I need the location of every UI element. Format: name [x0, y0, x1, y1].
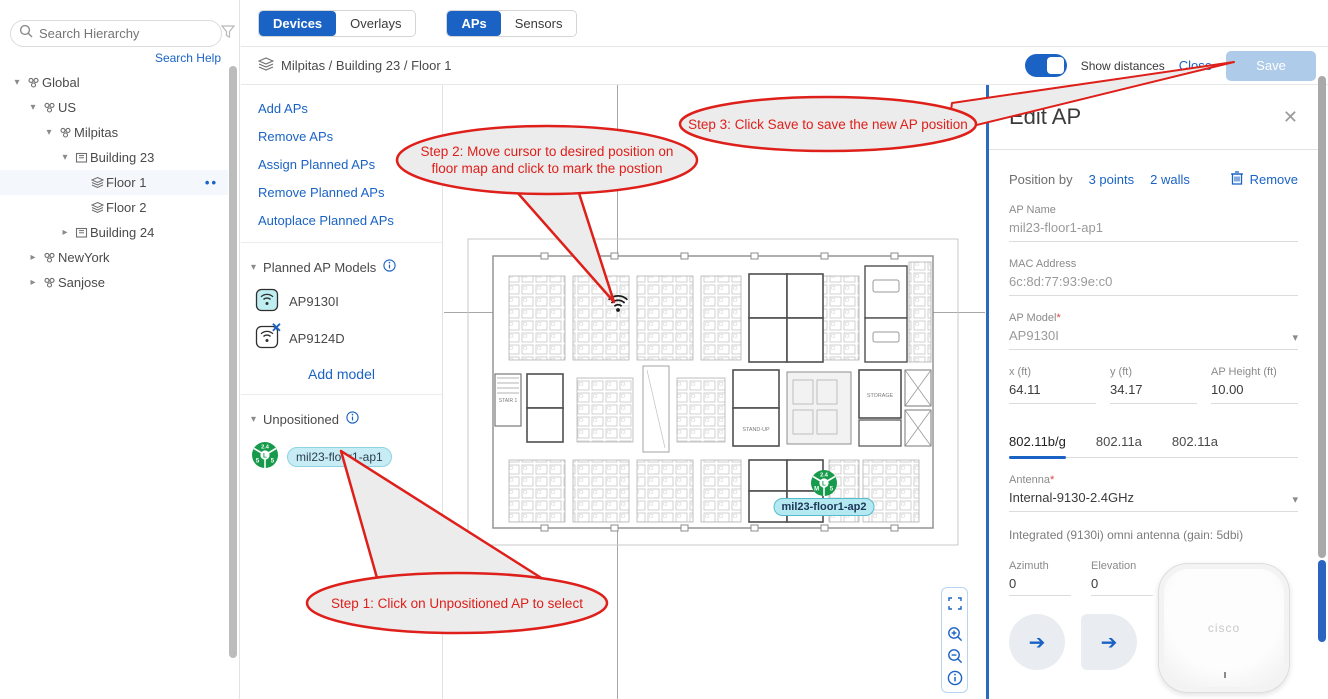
site-icon — [40, 251, 58, 264]
ap-name-value: mil23-floor1-ap1 — [1009, 220, 1298, 235]
tree-node-floor1[interactable]: Floor 1 •• — [0, 170, 228, 195]
edit-ap-panel: Edit AP ✕ Position by 3 points 2 walls R… — [986, 85, 1318, 699]
assign-planned-aps-link[interactable]: Assign Planned APs — [241, 150, 442, 178]
breadcrumb: Milpitas / Building 23 / Floor 1 — [258, 57, 452, 74]
tree-node-building23[interactable]: ▾ Building 23 — [0, 145, 228, 170]
hierarchy-sidebar: Search Help ▾ Global ▾ US ▾ Milpitas ▾ B… — [0, 0, 240, 699]
unpositioned-header[interactable]: ▾ Unpositioned — [241, 403, 442, 435]
mac-address-field: MAC Address 6c:8d:77:93:9e:c0 — [1009, 258, 1298, 296]
top-toolbar: Devices Overlays APs Sensors — [241, 0, 1328, 47]
remove-label: Remove — [1250, 172, 1298, 187]
divider — [989, 149, 1318, 150]
azimuth-label: Azimuth — [1009, 560, 1071, 572]
azimuth-dial[interactable]: ➔ — [1009, 614, 1065, 670]
y-value[interactable]: 34.17 — [1110, 382, 1197, 397]
search-help-link[interactable]: Search Help — [155, 51, 221, 65]
svg-text:2.4: 2.4 — [820, 473, 829, 479]
floor-map[interactable]: STAND-UP STORAGE STAIR 1 — [444, 85, 985, 699]
ap-height-field[interactable]: AP Height (ft) 10.00 — [1211, 366, 1298, 404]
map-info-icon[interactable] — [946, 669, 964, 687]
elevation-value[interactable]: 0 — [1091, 576, 1153, 591]
tree-label: NewYork — [58, 250, 110, 265]
page-scrollbar[interactable] — [1318, 76, 1326, 558]
devices-overlays-switch: Devices Overlays — [258, 10, 416, 37]
svg-text:STAIR 1: STAIR 1 — [499, 398, 518, 404]
tree-node-newyork[interactable]: ▸ NewYork — [0, 245, 228, 270]
planned-ap-models-title: Planned AP Models — [263, 260, 376, 275]
mac-address-label: MAC Address — [1009, 258, 1298, 270]
divider — [241, 242, 442, 243]
divider — [241, 394, 442, 395]
ap-height-value[interactable]: 10.00 — [1211, 382, 1298, 397]
show-distances-label: Show distances — [1081, 59, 1165, 73]
ap-placement-cursor-icon — [607, 294, 629, 318]
panel-scrollbar[interactable] — [1318, 560, 1326, 642]
tree-label: Floor 2 — [106, 200, 146, 215]
tab-80211a-1[interactable]: 802.11a — [1096, 428, 1142, 457]
arrow-right-icon: ➔ — [1029, 630, 1046, 655]
filter-icon[interactable] — [221, 25, 235, 43]
planned-model-ap9130i[interactable]: AP9130I — [241, 283, 442, 320]
aps-sensors-switch: APs Sensors — [446, 10, 577, 37]
tree-label: Building 23 — [90, 150, 154, 165]
tab-sensors[interactable]: Sensors — [501, 11, 577, 36]
chevron-down-icon[interactable]: ▾ — [42, 127, 56, 138]
tab-80211a-2[interactable]: 802.11a — [1172, 428, 1218, 457]
tree-label: Floor 1 — [106, 175, 146, 190]
ap-model-name: AP9130I — [289, 294, 339, 309]
tree-node-building24[interactable]: ▸ Building 24 — [0, 220, 228, 245]
remove-planned-aps-link[interactable]: Remove Planned APs — [241, 178, 442, 206]
building-icon — [72, 151, 90, 164]
antenna-description: Integrated (9130i) omni antenna (gain: 5… — [1009, 528, 1298, 542]
info-icon[interactable] — [346, 411, 359, 427]
unpositioned-ap-row[interactable]: 2.4 5 5 L mil23-floor1-ap1 — [241, 435, 442, 478]
site-icon — [40, 101, 58, 114]
azimuth-field[interactable]: Azimuth 0 — [1009, 560, 1071, 596]
position-by-points-link[interactable]: 3 points — [1089, 172, 1135, 187]
chevron-right-icon[interactable]: ▸ — [26, 252, 40, 263]
tree-node-global[interactable]: ▾ Global — [0, 70, 228, 95]
tab-overlays[interactable]: Overlays — [336, 11, 415, 36]
svg-text:STORAGE: STORAGE — [867, 393, 894, 399]
planned-ap-models-header[interactable]: ▾ Planned AP Models — [241, 251, 442, 283]
tree-label: Sanjose — [58, 275, 105, 290]
breadcrumb-path: Milpitas / Building 23 / Floor 1 — [281, 58, 452, 73]
elevation-dial[interactable]: ➔ — [1081, 614, 1137, 670]
autoplace-planned-aps-link[interactable]: Autoplace Planned APs — [241, 206, 442, 234]
azimuth-value[interactable]: 0 — [1009, 576, 1071, 591]
ap-product-image: cisco — [1158, 563, 1290, 693]
breadcrumb-bar: Milpitas / Building 23 / Floor 1 Show di… — [241, 47, 1328, 85]
trash-icon — [1230, 170, 1244, 188]
tab-devices[interactable]: Devices — [259, 11, 336, 36]
antenna-label: Antenna — [1009, 474, 1050, 486]
y-label: y (ft) — [1110, 366, 1197, 378]
ap-model-label: AP Model — [1009, 312, 1057, 324]
map-controls — [941, 587, 968, 693]
antenna-field[interactable]: Antenna* Internal-9130-2.4GHz ▾ — [1009, 474, 1298, 512]
chevron-down-icon[interactable]: ▾ — [1292, 493, 1298, 506]
chevron-right-icon[interactable]: ▸ — [26, 277, 40, 288]
y-field[interactable]: y (ft) 34.17 — [1110, 366, 1197, 404]
placed-ap-label[interactable]: mil23-floor1-ap2 — [774, 498, 875, 516]
ap-name-label: AP Name — [1009, 204, 1298, 216]
save-button[interactable]: Save — [1226, 51, 1316, 81]
floor-icon — [88, 176, 106, 189]
close-icon[interactable]: ✕ — [1283, 107, 1298, 128]
site-icon — [24, 76, 42, 89]
tree-node-sanjose[interactable]: ▸ Sanjose — [0, 270, 228, 295]
sidebar-scrollbar[interactable] — [229, 66, 237, 658]
chevron-down-icon[interactable]: ▾ — [26, 102, 40, 113]
info-icon[interactable] — [383, 259, 396, 275]
tree-node-us[interactable]: ▾ US — [0, 95, 228, 120]
add-aps-link[interactable]: Add APs — [241, 94, 442, 122]
ap-model-name: AP9124D — [289, 331, 345, 346]
chevron-down-icon[interactable]: ▾ — [58, 152, 72, 163]
ap-height-label: AP Height (ft) — [1211, 366, 1298, 378]
floor-icon — [88, 201, 106, 214]
x-value[interactable]: 64.11 — [1009, 382, 1096, 397]
tab-aps[interactable]: APs — [447, 11, 500, 36]
panel-title: Edit AP — [1009, 104, 1081, 130]
unpositioned-title: Unpositioned — [263, 412, 339, 427]
mac-address-value: 6c:8d:77:93:9e:c0 — [1009, 274, 1298, 289]
position-by-label: Position by — [1009, 172, 1073, 187]
site-icon — [56, 126, 74, 139]
antenna-value: Internal-9130-2.4GHz — [1009, 490, 1298, 505]
svg-text:STAND-UP: STAND-UP — [742, 427, 770, 433]
arrow-right-icon: ➔ — [1101, 630, 1118, 655]
add-model-link[interactable]: Add model — [241, 357, 442, 386]
x-label: x (ft) — [1009, 366, 1096, 378]
ap-model-field[interactable]: AP Model* AP9130I ▾ — [1009, 312, 1298, 350]
chevron-right-icon[interactable]: ▸ — [58, 227, 72, 238]
chevron-down-icon[interactable]: ▾ — [10, 77, 24, 88]
site-icon — [40, 276, 58, 289]
chevron-down-icon[interactable]: ▾ — [251, 262, 256, 273]
svg-text:L: L — [822, 480, 826, 487]
ap-name-field: AP Name mil23-floor1-ap1 — [1009, 204, 1298, 242]
fullscreen-icon[interactable] — [946, 594, 964, 612]
elevation-label: Elevation — [1091, 560, 1153, 572]
floor-plan: STAND-UP STORAGE STAIR 1 — [465, 236, 961, 548]
floor-menu-dots[interactable]: •• — [205, 175, 218, 190]
tree-node-milpitas[interactable]: ▾ Milpitas — [0, 120, 228, 145]
search-input[interactable] — [39, 26, 215, 41]
svg-text:2.4: 2.4 — [261, 445, 270, 451]
elevation-field[interactable]: Elevation 0 — [1091, 560, 1153, 596]
radio-band-tabs: 802.11b/g 802.11a 802.11a — [1009, 428, 1298, 458]
position-by-walls-link[interactable]: 2 walls — [1150, 172, 1190, 187]
svg-text:L: L — [263, 452, 267, 459]
hierarchy-search[interactable] — [10, 20, 222, 47]
search-icon — [19, 24, 33, 43]
cisco-logo: cisco — [1208, 621, 1240, 635]
chevron-down-icon[interactable]: ▾ — [1292, 331, 1298, 344]
ap-tools-panel: Add APs Remove APs Assign Planned APs Re… — [241, 85, 443, 699]
svg-text:M: M — [814, 487, 819, 493]
site-hierarchy-tree: ▾ Global ▾ US ▾ Milpitas ▾ Building 23 F… — [0, 70, 228, 295]
deselect-model-icon[interactable]: ✕ — [271, 320, 282, 336]
remove-aps-link[interactable]: Remove APs — [241, 122, 442, 150]
tree-label: Building 24 — [90, 225, 154, 240]
ap-model-icon — [255, 288, 279, 315]
tree-label: Milpitas — [74, 125, 118, 140]
ap-model-value: AP9130I — [1009, 328, 1298, 343]
tab-80211bg[interactable]: 802.11b/g — [1009, 428, 1066, 457]
zoom-out-icon[interactable] — [946, 647, 964, 665]
ap-badge-icon: 2.4 5 5 L — [251, 441, 279, 472]
tree-label: US — [58, 100, 76, 115]
close-button[interactable]: Close — [1179, 58, 1212, 73]
remove-ap-link[interactable]: Remove — [1230, 170, 1298, 188]
floor-stack-icon — [258, 57, 274, 74]
building-icon — [72, 226, 90, 239]
zoom-in-icon[interactable] — [946, 625, 964, 643]
show-distances-toggle[interactable] — [1025, 54, 1067, 77]
planned-model-ap9124d[interactable]: ✕ AP9124D — [241, 320, 442, 357]
chevron-down-icon[interactable]: ▾ — [251, 414, 256, 425]
tree-node-floor2[interactable]: Floor 2 — [0, 195, 228, 220]
unpositioned-ap-pill[interactable]: mil23-floor1-ap1 — [287, 447, 392, 467]
x-field[interactable]: x (ft) 64.11 — [1009, 366, 1096, 404]
tree-label: Global — [42, 75, 80, 90]
